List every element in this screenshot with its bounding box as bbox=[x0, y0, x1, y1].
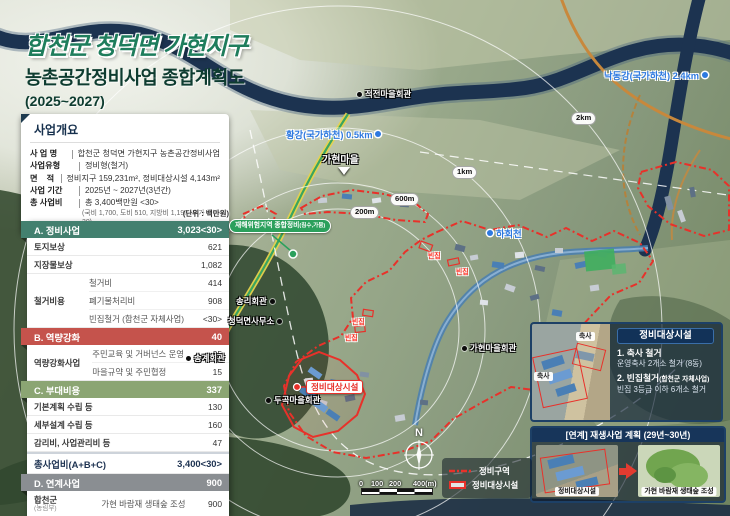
vacant-house-label: 빈집 bbox=[428, 250, 441, 260]
compass-north-label: N bbox=[403, 427, 435, 439]
facility-detail-panel: 축사 축사 정비대상시설 1. 축사 철거 운영축사 2개소 철거 (8동) 2… bbox=[530, 322, 723, 422]
map-legend: 정비구역 정비대상시설 bbox=[442, 458, 532, 498]
table-row: 감리비, 사업관리비 등 47 bbox=[27, 434, 229, 452]
row-value: 1,082 bbox=[184, 260, 222, 270]
compass-rose: N bbox=[403, 427, 435, 476]
field-label: 사 업 명 bbox=[30, 148, 67, 160]
row-value: 47 bbox=[184, 438, 222, 448]
table-row: 세부설계 수립 등 160 bbox=[27, 416, 229, 434]
row-value: 908 bbox=[184, 296, 222, 306]
grand-total-row: 총사업비(A+B+C) 3,400<30> bbox=[27, 452, 229, 474]
facility-zone-badge: 정비대상시설 bbox=[306, 380, 363, 394]
row-item: 가현 바람재 생태숲 조성 bbox=[101, 498, 185, 510]
title-block: 합천군 청덕면 가현지구 농촌공간정비사업 종합계획도 (2025~2027) bbox=[25, 26, 247, 109]
field-divider bbox=[79, 162, 80, 171]
org-name: 합천군 bbox=[34, 496, 101, 505]
row-value: 15 bbox=[184, 367, 222, 377]
vacant-house-outlines bbox=[355, 241, 460, 332]
place-dot-icon bbox=[277, 319, 282, 324]
section-title: C. 부대비용 bbox=[34, 383, 80, 397]
section-total: 3,023<30> bbox=[178, 225, 222, 235]
row-org: 합천군 (농림부) bbox=[34, 496, 101, 513]
section-total: 337 bbox=[206, 385, 222, 395]
field-divider bbox=[79, 199, 80, 208]
section-a-header: A. 정비사업 3,023<30> bbox=[21, 221, 229, 238]
grand-total-label: 총사업비(A+B+C) bbox=[34, 457, 106, 471]
place-label-gahyeon-village: 가현마을 bbox=[322, 151, 359, 166]
vacant-house-label: 빈집 bbox=[345, 332, 358, 342]
row-label: 세부설계 수립 등 bbox=[34, 419, 184, 431]
place-dot-icon bbox=[357, 92, 362, 97]
place-dot-icon bbox=[266, 398, 271, 403]
row-value: 621 bbox=[184, 242, 222, 252]
linked-project-panel: [연계] 재생사업 계획 (29년~30년) 정비대상시설 가현 바람재 생태숲… bbox=[530, 426, 726, 503]
table-row: 기본계획 수립 등 130 bbox=[27, 398, 229, 416]
river-label-hwanggang: 황강(국가하천) 0.5km bbox=[286, 127, 381, 141]
section-title: B. 역량강화 bbox=[34, 330, 80, 344]
row-label: 지장물보상 bbox=[34, 259, 104, 271]
ring-label-1km: 1km bbox=[452, 166, 477, 179]
place-label-dugok-hall: 두곡마을회관 bbox=[266, 394, 320, 406]
table-group-demolition: 철거비용 철거비 414 폐기물처리비 908 빈집철거 (합천군 자체사업) … bbox=[27, 274, 229, 328]
section-total: 900 bbox=[206, 478, 222, 488]
field-divider bbox=[72, 150, 73, 159]
facility-item-desc: 운영축사 2개소 철거 (8동) bbox=[617, 359, 714, 369]
linked-panel-header: [연계] 재생사업 계획 (29년~30년) bbox=[532, 428, 724, 442]
village-marker-icon bbox=[338, 167, 350, 175]
ring-label-600m: 600m bbox=[390, 193, 419, 206]
scale-tick-labels: 0 100 200 400(m) bbox=[361, 479, 435, 488]
field-divider bbox=[61, 174, 62, 183]
unit-note: (단위 : 백만원) bbox=[21, 208, 229, 219]
vacant-house-label: 빈집 bbox=[352, 316, 365, 326]
overview-header: 사업개요 bbox=[30, 121, 220, 143]
facility-rect-icon bbox=[449, 481, 466, 489]
barn-chip: 축사 bbox=[576, 332, 595, 341]
facility-panel-header: 정비대상시설 bbox=[617, 328, 714, 344]
section-title: A. 정비사업 bbox=[34, 223, 80, 237]
place-dot-icon bbox=[186, 356, 191, 361]
field-divider bbox=[79, 186, 80, 195]
after-photo: 가현 바람재 생태숲 조성 bbox=[638, 445, 720, 497]
place-label-cheongdeok-office: 청덕면사무소 bbox=[228, 315, 282, 327]
table-row: 폐기물처리비 908 bbox=[89, 292, 229, 310]
before-photo: 정비대상시설 bbox=[536, 445, 618, 497]
table-row: 합천군 (농림부) 가현 바람재 생태숲 조성 900 bbox=[27, 491, 229, 516]
ring-label-200m: 200m bbox=[350, 206, 379, 219]
ring-label-2km: 2km bbox=[571, 112, 596, 125]
facility-photo: 축사 축사 bbox=[532, 324, 610, 420]
place-label-jeokjeon-hall: 적전마을회관 bbox=[357, 88, 411, 100]
field-label: 면 적 bbox=[30, 173, 56, 185]
compass-icon bbox=[403, 439, 435, 471]
river-label-nakdong: 낙동강(국가하천) 2.4km bbox=[604, 68, 708, 82]
row-item: 폐기물처리비 bbox=[89, 295, 184, 307]
grand-total-value: 3,400<30> bbox=[177, 458, 222, 469]
table-row: 빈집철거 (합천군 자체사업) <30> bbox=[89, 310, 229, 327]
before-caption: 정비대상시설 bbox=[555, 487, 599, 496]
district-title: 합천군 청덕면 가현지구 bbox=[25, 26, 247, 61]
section-total: 40 bbox=[212, 332, 222, 342]
place-label-songgye-hall: 송계회관 bbox=[186, 352, 225, 364]
after-caption: 가현 바람재 생태숲 조성 bbox=[641, 487, 716, 496]
place-label-songri-hall: 송리회관 bbox=[236, 295, 275, 307]
row-value: 900 bbox=[185, 499, 222, 509]
zone-line-icon bbox=[449, 468, 473, 474]
group-label: 역량강화사업 bbox=[27, 345, 92, 380]
project-title: 농촌공간정비사업 종합계획도 bbox=[25, 64, 247, 90]
facility-info: 정비대상시설 1. 축사 철거 운영축사 2개소 철거 (8동) 2. 빈집철거… bbox=[610, 324, 721, 420]
legend-facility-row: 정비대상시설 bbox=[449, 478, 525, 492]
row-item: 빈집철거 (합천군 자체사업) bbox=[89, 313, 184, 325]
barn-chip: 축사 bbox=[534, 372, 553, 381]
river-label-hahoecheon: 하회천 bbox=[487, 226, 522, 240]
row-item: 철거비 bbox=[89, 277, 184, 289]
section-b-header: B. 역량강화 40 bbox=[21, 328, 229, 345]
table-row: 철거비 414 bbox=[89, 274, 229, 292]
scale-bar-graphic bbox=[361, 488, 433, 495]
river-dot-icon bbox=[487, 230, 493, 236]
row-item: 마을규약 및 주민협정 bbox=[92, 366, 184, 378]
facility-item-title: 1. 축사 철거 bbox=[617, 348, 714, 359]
facility-point bbox=[294, 384, 301, 391]
vacant-house-label: 빈집 bbox=[456, 266, 469, 276]
field-label: 사업 기간 bbox=[30, 185, 74, 197]
overview-row-type: 사업유형 정비형(철거) bbox=[30, 160, 220, 172]
overview-row-area: 면 적 정비지구 159,231m², 정비대상시설 4,143m² bbox=[30, 173, 220, 185]
org-sub: (농림부) bbox=[34, 505, 101, 513]
disaster-zone-badge: 재해위험지역 종합정비(침수,가뭄) bbox=[229, 219, 331, 233]
table-row: 지장물보상 1,082 bbox=[27, 256, 229, 274]
row-label: 토지보상 bbox=[34, 241, 104, 253]
facility-item-title: 2. 빈집철거(합천군 자체사업) bbox=[617, 373, 714, 385]
disaster-point bbox=[289, 250, 297, 258]
project-period: (2025~2027) bbox=[25, 93, 247, 109]
table-row: 마을규약 및 주민협정 15 bbox=[92, 363, 229, 380]
place-dot-icon bbox=[462, 346, 467, 351]
facility-item-desc: 빈집 3등급 이하 6개소 철거 bbox=[617, 385, 714, 395]
row-value: <30> bbox=[184, 314, 222, 324]
overview-row-name: 사 업 명 합천군 청덕면 가현지구 농촌공간정비사업 bbox=[30, 148, 220, 160]
river-dot-icon bbox=[702, 72, 708, 78]
group-label: 철거비용 bbox=[27, 274, 89, 327]
row-value: 414 bbox=[184, 278, 222, 288]
place-dot-icon bbox=[270, 299, 275, 304]
place-label-gahyeon-hall: 가현마을회관 bbox=[462, 342, 516, 354]
row-value: 160 bbox=[184, 420, 222, 430]
overview-row-period: 사업 기간 2025년 ~ 2027년(3년간) bbox=[30, 185, 220, 197]
row-item: 주민교육 및 거버넌스 운영 bbox=[92, 348, 184, 360]
section-c-header: C. 부대비용 337 bbox=[21, 381, 229, 398]
field-value: 합천군 청덕면 가현지구 농촌공간정비사업 bbox=[78, 148, 220, 160]
transform-arrow-icon bbox=[619, 463, 637, 479]
budget-table: A. 정비사업 3,023<30> 토지보상 621 지장물보상 1,082 철… bbox=[27, 221, 229, 516]
section-title: D. 연계사업 bbox=[34, 476, 80, 490]
river-dot-icon bbox=[375, 131, 381, 137]
field-value: 2025년 ~ 2027년(3년간) bbox=[85, 185, 220, 197]
section-d-header: D. 연계사업 900 bbox=[21, 474, 229, 491]
scale-bar: 0 100 200 400(m) bbox=[361, 479, 435, 495]
row-label: 감리비, 사업관리비 등 bbox=[34, 437, 184, 449]
legend-zone-row: 정비구역 bbox=[449, 464, 525, 478]
row-value: 130 bbox=[184, 402, 222, 412]
plan-map-poster: 합천군 청덕면 가현지구 농촌공간정비사업 종합계획도 (2025~2027) … bbox=[0, 0, 730, 516]
field-value: 정비형(철거) bbox=[85, 160, 220, 172]
field-value: 정비지구 159,231m², 정비대상시설 4,143m² bbox=[66, 173, 220, 185]
table-row: 토지보상 621 bbox=[27, 238, 229, 256]
row-label: 기본계획 수립 등 bbox=[34, 401, 184, 413]
field-label: 사업유형 bbox=[30, 160, 74, 172]
